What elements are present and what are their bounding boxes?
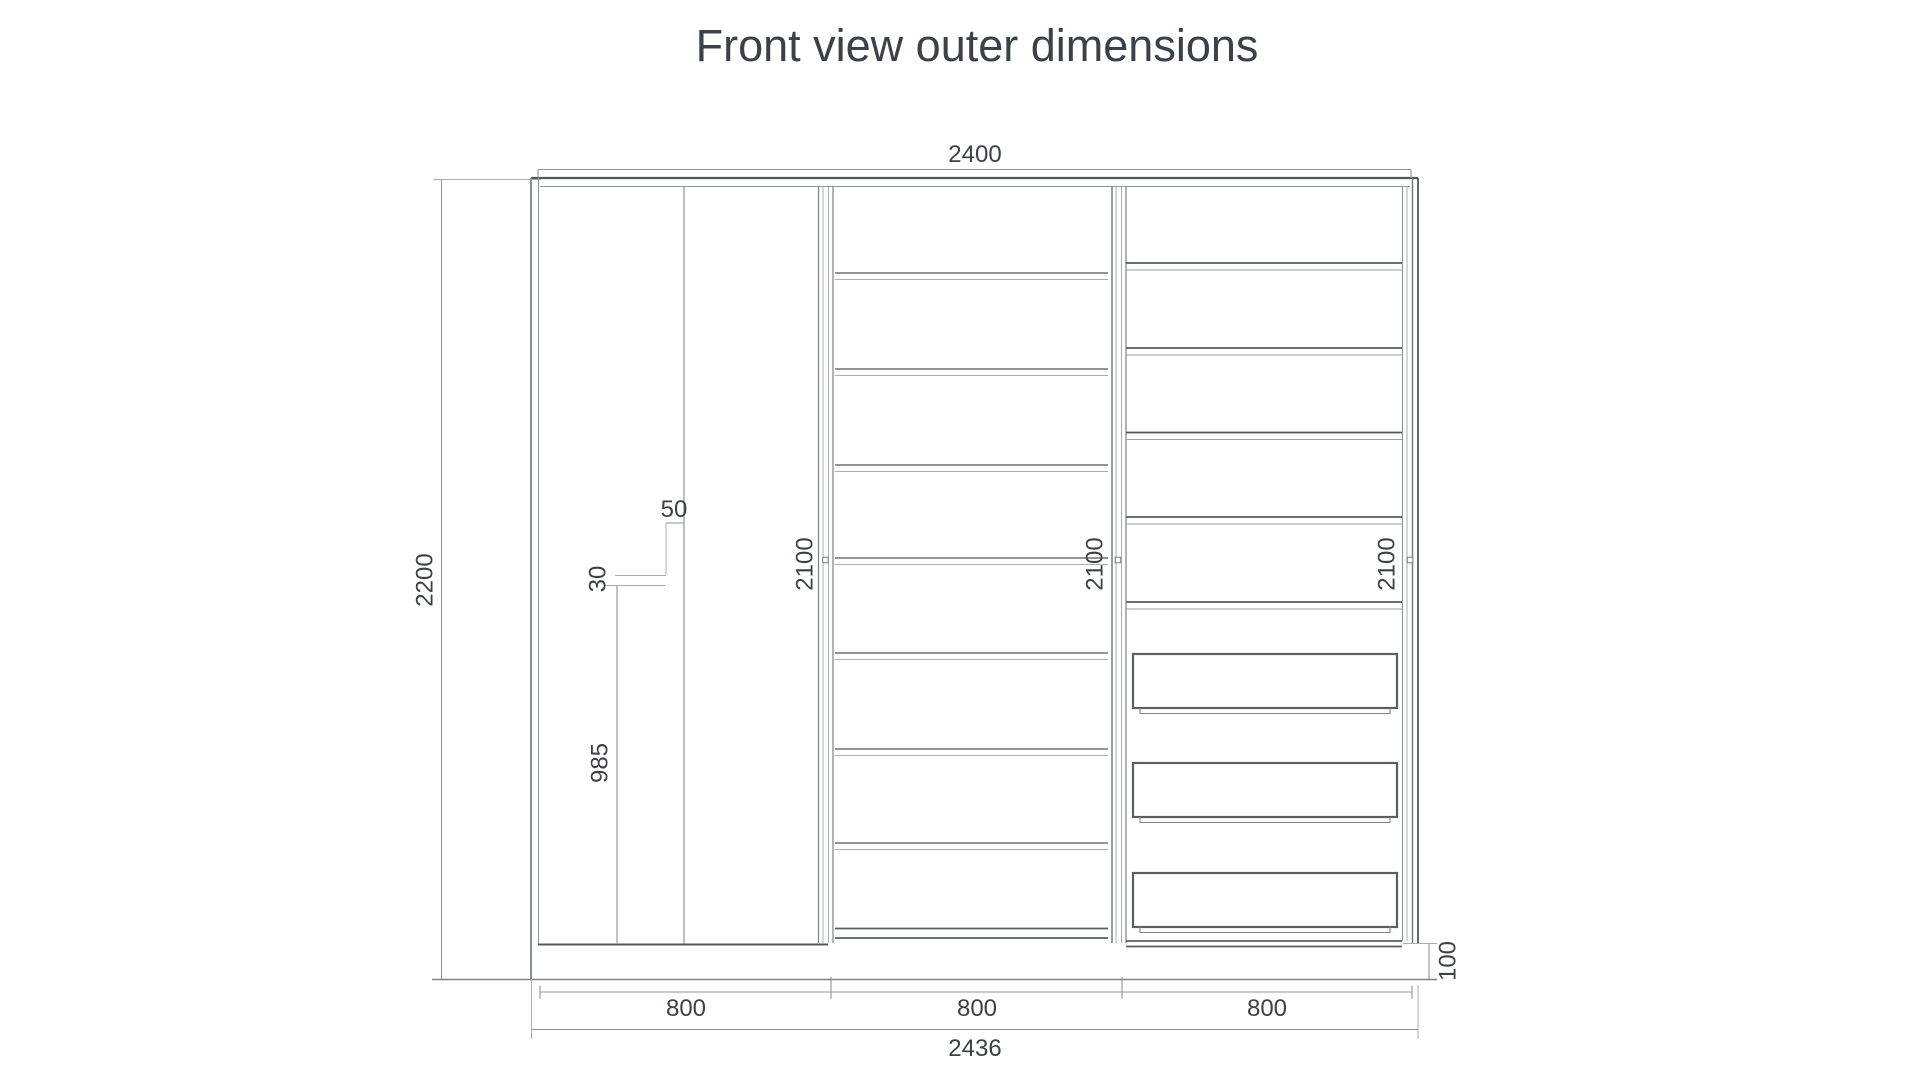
dim-label-2400: 2400 [948,141,1001,168]
dim-label-2436: 2436 [948,1035,1001,1062]
dimension-overall-height: 2200 [412,179,542,979]
dim-label-2200: 2200 [412,553,439,606]
dim-midpoint-tick [1115,557,1121,563]
dim-label-50: 50 [661,496,688,523]
dim-label-800-module-2: 800 [957,995,997,1022]
front-view-technical-drawing: Front view outer dimensions [0,0,1920,1080]
module-1-hanging-section [538,187,828,945]
dim-label-2100-module-2: 2100 [1082,537,1109,590]
dim-label-800-module-1: 800 [666,995,706,1022]
dim-label-2100-module-3: 2100 [1374,537,1401,590]
dim-label-2100-module-1: 2100 [792,537,819,590]
dimension-plinth-height: 100 [1403,941,1462,981]
drawer-front [1133,873,1397,933]
carcass-outline [531,178,1418,979]
drawer-front [1133,654,1397,714]
dim-label-985: 985 [587,743,614,783]
dim-midpoint-tick [823,557,829,563]
dim-label-30: 30 [585,566,612,593]
dimension-module-widths: 800 800 800 [540,977,1412,1022]
dimension-rail-callouts: 50 30 985 [585,496,688,944]
dim-label-800-module-3: 800 [1247,995,1287,1022]
module-2-shelves [835,273,1108,938]
dim-label-100: 100 [1435,941,1462,981]
drawer-front [1133,763,1397,823]
drawing-page: Front view outer dimensions [0,0,1920,1080]
dim-midpoint-tick [1407,557,1413,563]
drawing-title: Front view outer dimensions [696,20,1259,71]
module-3-drawers [1133,654,1397,933]
dimension-overall-width: 2400 [538,141,1411,178]
module-3-shelves [1126,263,1402,947]
